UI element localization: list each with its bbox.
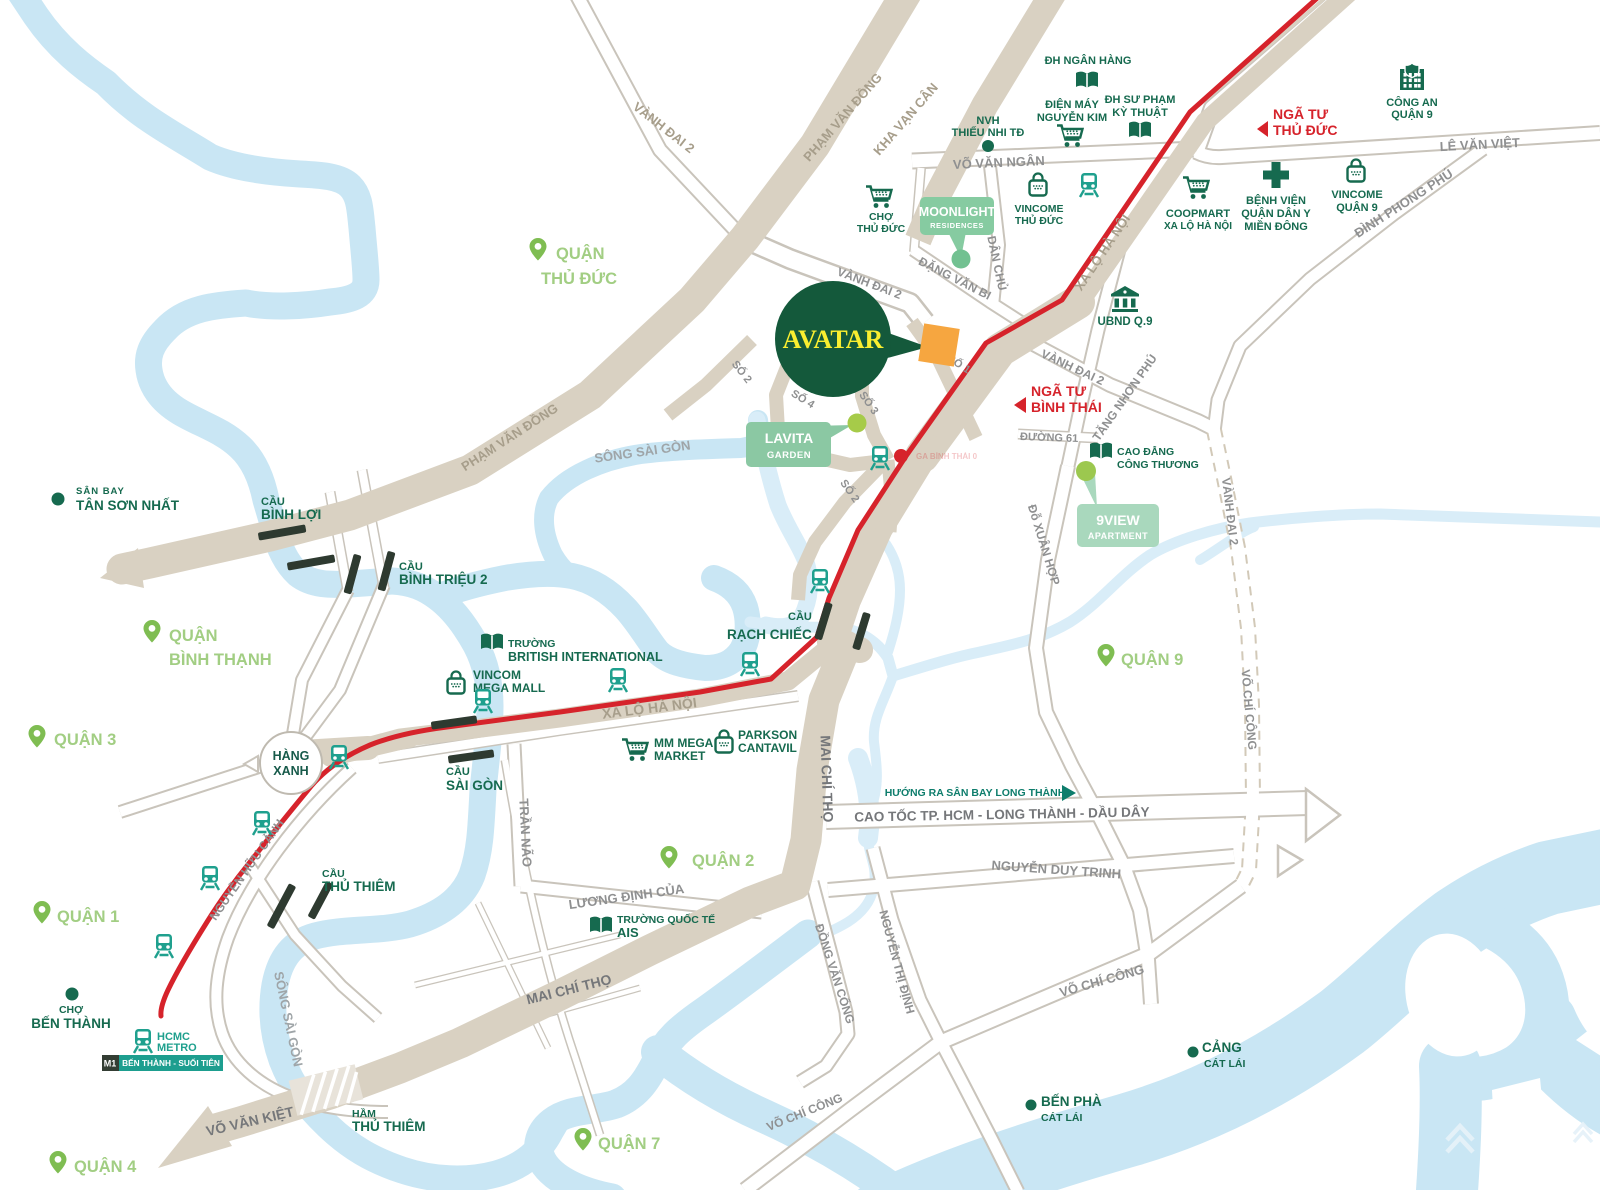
svg-text:QUẬN: QUẬN bbox=[556, 244, 605, 263]
svg-text:MARKET: MARKET bbox=[654, 749, 706, 763]
svg-text:MOONLIGHT: MOONLIGHT bbox=[919, 205, 996, 219]
svg-text:CÔNG THƯƠNG: CÔNG THƯƠNG bbox=[1117, 458, 1199, 471]
svg-text:CẦU: CẦU bbox=[446, 765, 470, 778]
svg-text:THỦ THIÊM: THỦ THIÊM bbox=[322, 879, 396, 894]
svg-text:VINCOME: VINCOME bbox=[1014, 203, 1063, 215]
svg-text:BỆNH VIỆN: BỆNH VIỆN bbox=[1246, 194, 1306, 207]
svg-text:BẾN PHÀ: BẾN PHÀ bbox=[1041, 1094, 1102, 1109]
svg-text:CÁT LÁI: CÁT LÁI bbox=[1041, 1111, 1082, 1124]
svg-text:BRITISH INTERNATIONAL: BRITISH INTERNATIONAL bbox=[508, 650, 663, 664]
svg-text:THIẾU NHI TĐ: THIẾU NHI TĐ bbox=[952, 126, 1025, 139]
svg-text:THỦ ĐỨC: THỦ ĐỨC bbox=[1273, 121, 1338, 138]
svg-text:GA BÌNH THÁI 0: GA BÌNH THÁI 0 bbox=[916, 452, 978, 461]
svg-text:METRO: METRO bbox=[157, 1042, 197, 1054]
svg-text:SÀI GÒN: SÀI GÒN bbox=[446, 778, 503, 793]
svg-text:THỦ ĐỨC: THỦ ĐỨC bbox=[541, 269, 617, 288]
svg-text:PARKSON: PARKSON bbox=[738, 728, 797, 742]
svg-text:CẢNG: CẢNG bbox=[1202, 1040, 1242, 1055]
svg-text:CHỢ: CHỢ bbox=[59, 1004, 83, 1016]
svg-text:MAI CHÍ THỌ: MAI CHÍ THỌ bbox=[817, 735, 836, 823]
svg-text:CÁT LÁI: CÁT LÁI bbox=[1204, 1057, 1245, 1070]
svg-text:CHỢ: CHỢ bbox=[869, 211, 893, 223]
svg-text:M1: M1 bbox=[104, 1059, 117, 1069]
svg-text:BÌNH THẠNH: BÌNH THẠNH bbox=[169, 650, 272, 669]
svg-text:XANH: XANH bbox=[273, 764, 308, 778]
svg-text:XA LỘ HÀ NỘI: XA LỘ HÀ NỘI bbox=[1164, 219, 1232, 232]
svg-text:RESIDENCES: RESIDENCES bbox=[930, 221, 984, 230]
svg-text:COOPMART: COOPMART bbox=[1166, 208, 1230, 220]
svg-text:ĐƯỜNG 61: ĐƯỜNG 61 bbox=[1020, 430, 1079, 445]
svg-text:BẾN THÀNH: BẾN THÀNH bbox=[31, 1016, 111, 1031]
svg-text:LAVITA: LAVITA bbox=[765, 430, 813, 446]
svg-text:VINCOME: VINCOME bbox=[1331, 189, 1382, 201]
svg-text:QUẬN: QUẬN bbox=[169, 626, 218, 645]
svg-text:TÂN SƠN NHẤT: TÂN SƠN NHẤT bbox=[76, 498, 180, 513]
svg-text:NGÃ TƯ: NGÃ TƯ bbox=[1031, 382, 1087, 399]
svg-text:QUẬN DÂN Y: QUẬN DÂN Y bbox=[1241, 207, 1311, 220]
svg-text:TRƯỜNG QUỐC TẾ: TRƯỜNG QUỐC TẾ bbox=[617, 912, 715, 926]
svg-text:NVH: NVH bbox=[976, 115, 999, 127]
svg-text:QUẬN 9: QUẬN 9 bbox=[1391, 108, 1433, 121]
svg-text:QUẬN 7: QUẬN 7 bbox=[598, 1134, 660, 1153]
svg-text:SÂN BAY: SÂN BAY bbox=[76, 485, 125, 497]
svg-text:QUẬN 9: QUẬN 9 bbox=[1336, 201, 1378, 214]
svg-text:9VIEW: 9VIEW bbox=[1096, 512, 1140, 528]
svg-text:HƯỚNG RA SÂN BAY LONG THÀNH: HƯỚNG RA SÂN BAY LONG THÀNH bbox=[885, 786, 1066, 799]
svg-text:TRƯỜNG: TRƯỜNG bbox=[508, 637, 555, 650]
svg-text:THỦ THIÊM: THỦ THIÊM bbox=[352, 1119, 426, 1134]
svg-text:CẦU: CẦU bbox=[788, 610, 812, 623]
svg-text:CÔNG AN: CÔNG AN bbox=[1386, 96, 1438, 109]
svg-text:BÌNH THÁI: BÌNH THÁI bbox=[1031, 399, 1102, 415]
svg-text:UBND Q.9: UBND Q.9 bbox=[1098, 316, 1153, 328]
svg-text:HÀNG: HÀNG bbox=[273, 748, 310, 763]
svg-text:BẾN THÀNH - SUỐI TIÊN: BẾN THÀNH - SUỐI TIÊN bbox=[122, 1057, 220, 1068]
svg-text:RẠCH CHIẾC: RẠCH CHIẾC bbox=[727, 627, 812, 642]
svg-text:NGUYỄN KIM: NGUYỄN KIM bbox=[1037, 111, 1107, 124]
svg-text:ĐH NGÂN HÀNG: ĐH NGÂN HÀNG bbox=[1045, 54, 1132, 67]
svg-text:MM MEGA: MM MEGA bbox=[654, 736, 714, 750]
svg-text:APARTMENT: APARTMENT bbox=[1088, 531, 1148, 541]
svg-text:THỦ ĐỨC: THỦ ĐỨC bbox=[1015, 214, 1064, 227]
svg-text:MIỀN ĐÔNG: MIỀN ĐÔNG bbox=[1244, 220, 1308, 233]
svg-text:THỦ ĐỨC: THỦ ĐỨC bbox=[857, 222, 906, 235]
svg-text:VINCOM: VINCOM bbox=[473, 668, 521, 682]
svg-text:BÌNH TRIỆU 2: BÌNH TRIỆU 2 bbox=[399, 572, 488, 587]
svg-text:CAO ĐẪNG: CAO ĐẪNG bbox=[1117, 445, 1174, 458]
svg-text:ĐH SƯ PHẠM: ĐH SƯ PHẠM bbox=[1105, 94, 1176, 106]
svg-text:QUẬN 3: QUẬN 3 bbox=[54, 730, 116, 749]
svg-text:NGÃ TƯ: NGÃ TƯ bbox=[1273, 105, 1329, 122]
svg-text:QUẬN 4: QUẬN 4 bbox=[74, 1157, 137, 1176]
svg-text:GARDEN: GARDEN bbox=[767, 450, 811, 461]
svg-text:BÌNH LỢI: BÌNH LỢI bbox=[261, 507, 321, 522]
svg-text:QUẬN 2: QUẬN 2 bbox=[692, 851, 754, 870]
svg-text:ĐIỆN MÁY: ĐIỆN MÁY bbox=[1045, 98, 1099, 111]
svg-text:KỲ THUẬT: KỲ THUẬT bbox=[1112, 106, 1168, 119]
svg-text:AIS: AIS bbox=[617, 925, 639, 940]
svg-text:QUẬN 1: QUẬN 1 bbox=[57, 907, 119, 926]
svg-text:QUẬN 9: QUẬN 9 bbox=[1121, 650, 1183, 669]
svg-text:CANTAVIL: CANTAVIL bbox=[738, 741, 797, 755]
svg-text:AVATAR: AVATAR bbox=[783, 325, 884, 354]
